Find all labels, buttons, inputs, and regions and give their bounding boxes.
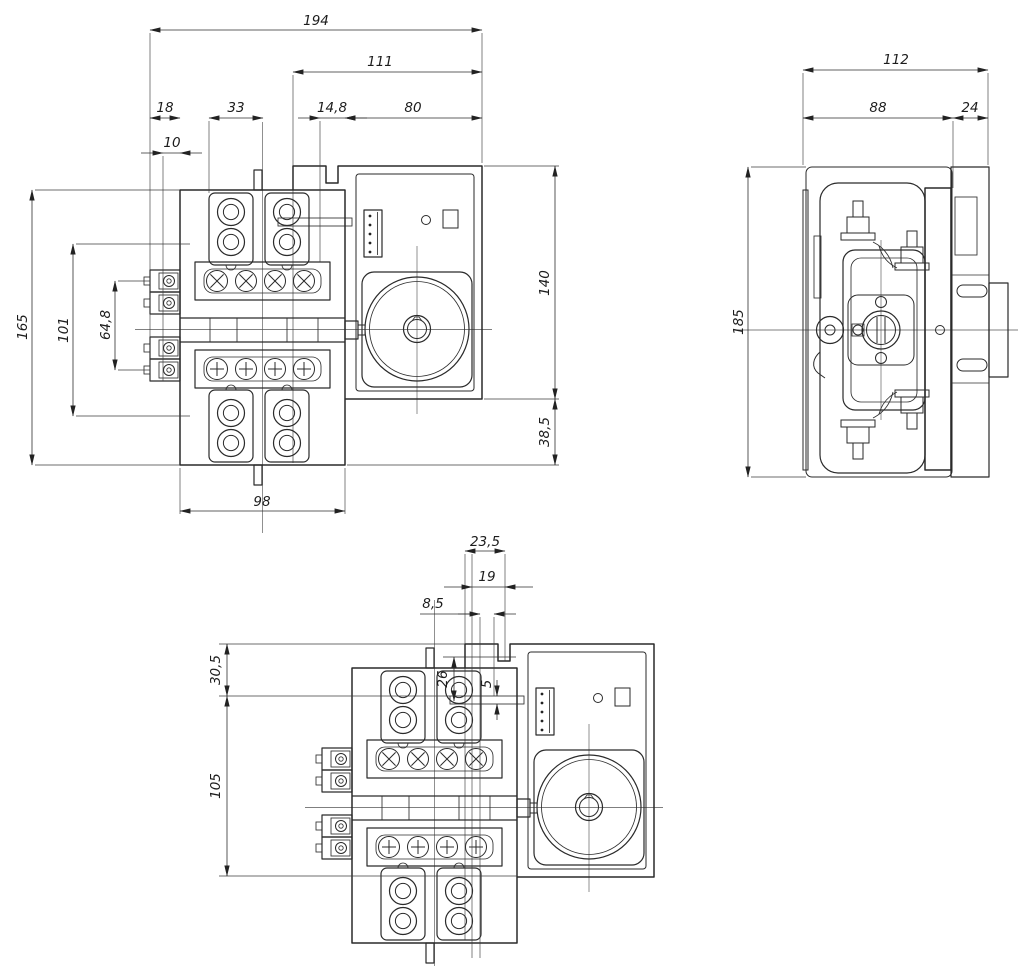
side-slot — [957, 359, 987, 371]
side-view — [737, 167, 1018, 477]
dim-front-gap-width: 14,8 — [298, 100, 367, 118]
dim-front-pad-to-center: 33 — [209, 100, 263, 118]
dim-side-overall-height: 185 — [731, 167, 806, 477]
dim-label: 30,5 — [208, 655, 224, 685]
dim-label: 24 — [961, 100, 978, 116]
dim-label: 88 — [869, 100, 886, 116]
pin-connector — [364, 210, 382, 257]
dim-side-overall-depth: 112 — [803, 52, 988, 70]
front-view-dimensions: 194 111 18 33 14,8 80 10 165 101 — [15, 13, 559, 514]
dim-label: 111 — [367, 54, 393, 70]
dim-bottom-slot-width: 19 — [444, 569, 533, 587]
dim-label: 105 — [208, 773, 224, 799]
dim-label: 18 — [156, 100, 173, 116]
dim-front-contact-pitch: 64,8 — [98, 281, 150, 370]
side-slot — [957, 285, 987, 297]
dim-label: 165 — [15, 314, 31, 340]
bottom-view-dimensions: 23,5 19 8,5 26 5 30,5 105 — [208, 534, 533, 958]
test-button — [615, 688, 630, 706]
side-control-box — [951, 167, 989, 477]
dim-front-left-terminal-width: 18 — [150, 100, 180, 118]
dim-front-box-height: 140 — [484, 166, 559, 399]
dim-front-overall-width: 194 — [150, 13, 482, 30]
dim-bottom-body-height: 105 — [208, 696, 517, 876]
dim-label: 185 — [731, 309, 747, 335]
dim-label: 26 — [435, 670, 451, 687]
dim-label: 38,5 — [537, 417, 553, 447]
bottom-tab — [254, 465, 262, 485]
dim-label: 5 — [479, 680, 495, 689]
dim-front-cover-width: 111 — [293, 54, 482, 72]
dim-label: 194 — [303, 13, 329, 29]
dim-label: 8,5 — [422, 596, 443, 612]
dim-label: 10 — [163, 135, 180, 151]
mounting-plate — [925, 188, 951, 470]
dim-front-base-extension: 38,5 — [347, 399, 559, 465]
front-view — [135, 75, 492, 533]
dim-bottom-cutout-width: 23,5 — [465, 534, 505, 551]
dim-label: 19 — [478, 569, 495, 585]
side-body-envelope — [806, 167, 952, 477]
test-button — [443, 210, 458, 228]
indicator-led — [422, 216, 431, 225]
top-tab — [254, 170, 262, 190]
bottom-tab — [426, 943, 434, 963]
indicator-led — [594, 694, 603, 703]
technical-drawing-page: 194 111 18 33 14,8 80 10 165 101 — [0, 0, 1024, 976]
dim-label: 140 — [537, 270, 553, 296]
dim-side-box-depth: 24 — [953, 100, 988, 118]
dim-label: 23,5 — [470, 534, 500, 550]
dim-label: 14,8 — [317, 100, 347, 116]
dim-label: 112 — [883, 52, 909, 68]
dim-bottom-slot-offset: 8,5 — [420, 596, 516, 614]
dim-bottom-tab-thickness: 5 — [479, 680, 497, 720]
dim-label: 33 — [227, 100, 244, 116]
dim-label: 101 — [56, 317, 72, 343]
din-hook — [814, 352, 825, 378]
top-tab — [426, 648, 434, 668]
side-box-step — [955, 197, 977, 255]
dim-front-box-width: 80 — [345, 100, 482, 118]
dim-label: 80 — [404, 100, 421, 116]
bottom-view — [305, 600, 663, 966]
dim-side-body-depth: 88 — [803, 100, 953, 118]
dimensional-drawing: 194 111 18 33 14,8 80 10 165 101 — [0, 0, 1024, 976]
dim-label: 98 — [253, 494, 270, 510]
pin-connector — [536, 688, 554, 735]
dim-label: 64,8 — [98, 310, 114, 340]
side-view-dimensions: 112 88 24 185 — [731, 52, 988, 477]
